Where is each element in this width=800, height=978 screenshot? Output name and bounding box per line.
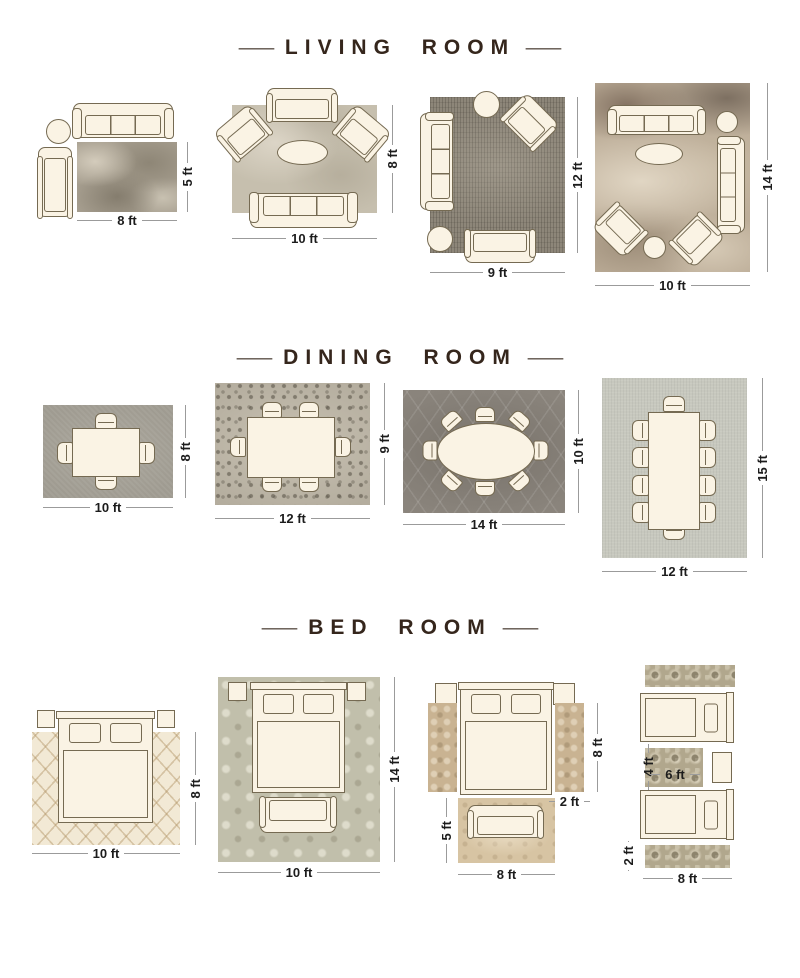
bed [460,683,552,795]
sofa-cushions [720,148,736,221]
dimension-mid-rug-height: 4 ft [641,744,655,790]
loveseat-cushion [473,233,526,252]
dining-chair [230,437,246,457]
runner-rug [428,703,457,792]
dining-table [72,428,140,477]
bench-cushion [269,800,327,821]
oval-coffee-table [635,143,683,165]
nightstand [157,710,175,728]
dimension-text: 2 ft [560,795,580,808]
nightstand [347,682,366,701]
section-title-dining-room: — DINING ROOM — [0,346,800,370]
dimension-width: 10 ft [32,847,180,860]
pillow [511,694,542,714]
pillow [69,723,101,743]
nightstand [37,710,55,728]
dining-chair [335,437,351,457]
rug-size-guide: — LIVING ROOM — 8 ft 5 ft 10 ft 8 ft 9 f… [0,0,800,978]
pillow [110,723,142,743]
dining-chair [423,441,438,461]
dimension-runner-length: 8 ft [643,872,732,885]
dimension-runner-width: 2 ft [621,841,635,871]
dimension-text: 10 ft [95,501,122,514]
section-title-text: LIVING ROOM [285,36,515,60]
dimension-text: 8 ft [497,868,517,881]
dimension-width: 8 ft [77,214,177,227]
dimension-text: 12 ft [661,565,688,578]
dimension-text: 5 ft [181,167,194,187]
loveseat [267,88,337,122]
pillow [263,694,294,714]
title-dash: — [526,36,562,60]
nightstand [712,752,732,783]
dimension-text: 10 ft [93,847,120,860]
bed [58,712,153,823]
dimension-height: 10 ft [570,390,586,513]
section-title-bed-room: — BED ROOM — [0,616,800,640]
twin-bed [640,693,733,742]
dimension-width: 12 ft [215,512,370,525]
dimension-width: 10 ft [218,866,380,879]
title-dash: — [527,346,563,370]
dimension-text: 10 ft [291,232,318,245]
three-seat-sofa [608,105,705,135]
nightstand [553,683,575,705]
title-dash: — [237,346,273,370]
section-title-text: BED ROOM [308,616,492,640]
dimension-text: 9 ft [488,266,508,279]
dimension-text: 14 ft [471,518,498,531]
title-dash: — [502,616,538,640]
dimension-text: 14 ft [388,756,401,783]
dimension-runner-length: 8 ft [589,703,605,792]
dimension-height: 14 ft [386,677,402,862]
dimension-text: 8 ft [386,149,399,169]
section-title-text: DINING ROOM [283,346,517,370]
title-dash: — [239,36,275,60]
dining-chair [299,476,319,492]
nightstand [435,683,457,705]
dimension-width: 9 ft [430,266,565,279]
dimension-height: 5 ft [179,142,195,212]
dimension-text: 8 ft [189,779,202,799]
dining-chair [632,475,649,496]
dimension-text: 10 ft [659,279,686,292]
dining-chair [632,420,649,441]
dimension-text: 8 ft [117,214,137,227]
dining-chair [632,447,649,468]
chaise-lounge [38,147,72,217]
dining-chair [262,402,282,418]
bench [468,805,543,838]
dimension-text: 15 ft [756,455,769,482]
dimension-text: 14 ft [761,164,774,191]
dimension-height: 9 ft [376,383,392,505]
round-side-table [473,91,500,118]
runner-rug [645,665,735,687]
dining-chair [699,502,716,523]
sofa-cushions [619,115,693,132]
oval-dining-table [437,423,535,480]
dimension-mid-rug-width: 6 ft [650,768,700,781]
dining-chair [699,447,716,468]
dining-chair [699,420,716,441]
dimension-height: 14 ft [759,83,775,272]
sofa-cushions [263,196,345,216]
bench [260,797,336,833]
dimension-text: 9 ft [378,434,391,454]
dining-table [648,412,700,530]
dimension-text: 10 ft [286,866,313,879]
dimension-runner-width: 2 ft [549,795,590,808]
dimension-text: 8 ft [591,738,604,758]
three-seat-sofa [250,193,357,228]
bed [252,683,345,793]
dining-chair [475,481,495,496]
dining-chair [663,396,685,412]
dimension-text: 2 ft [622,846,635,866]
dining-chair [632,502,649,523]
round-ottoman [643,236,666,259]
three-seat-sofa [73,103,173,138]
dimension-text: 5 ft [440,821,453,841]
dimension-text: 12 ft [571,162,584,189]
chaise-cushion [44,158,66,212]
dining-table [247,417,335,478]
dimension-width: 12 ft [602,565,747,578]
pillow [471,694,502,714]
dimension-text: 8 ft [678,872,698,885]
title-dash: — [262,616,298,640]
runner-rug [645,845,730,868]
loveseat [465,230,535,263]
dimension-text: 12 ft [279,512,306,525]
dimension-width: 14 ft [403,518,565,531]
pillow [303,694,334,714]
dining-chair [57,442,73,464]
three-seat-sofa [717,137,745,233]
dimension-height: 12 ft [569,97,585,253]
dining-chair [534,441,549,461]
dimension-height: 8 ft [384,105,400,213]
sofa-cushions [431,124,450,198]
sofa-cushions [85,115,161,135]
loveseat-cushion [275,99,328,119]
pillow [704,703,718,732]
oval-coffee-table [277,140,328,165]
dining-chair [475,407,495,422]
three-seat-sofa [420,113,453,210]
dimension-width: 10 ft [595,279,750,292]
dimension-width: 10 ft [43,501,173,514]
dining-chair [699,475,716,496]
dining-chair [139,442,155,464]
section-title-living-room: — LIVING ROOM — [0,36,800,60]
bench-cushion [477,816,534,835]
dimension-width: 10 ft [232,232,377,245]
dimension-height: 15 ft [754,378,770,558]
round-side-table [716,111,738,133]
round-ottoman [427,226,453,252]
pillow [704,800,718,829]
twin-bed [640,790,733,839]
dimension-height: 8 ft [177,405,193,498]
round-side-table [46,119,71,144]
living-rug-8x5 [77,142,177,212]
dining-chair [299,402,319,418]
dimension-text: 6 ft [665,768,685,781]
dimension-foot-rug-width: 8 ft [458,868,555,881]
dimension-foot-rug-height: 5 ft [438,798,454,863]
nightstand [228,682,247,701]
dining-chair [95,413,117,429]
dimension-height: 8 ft [187,732,203,845]
runner-rug [555,703,584,792]
dimension-text: 10 ft [572,438,585,465]
dimension-text: 8 ft [179,442,192,462]
dining-chair [262,476,282,492]
